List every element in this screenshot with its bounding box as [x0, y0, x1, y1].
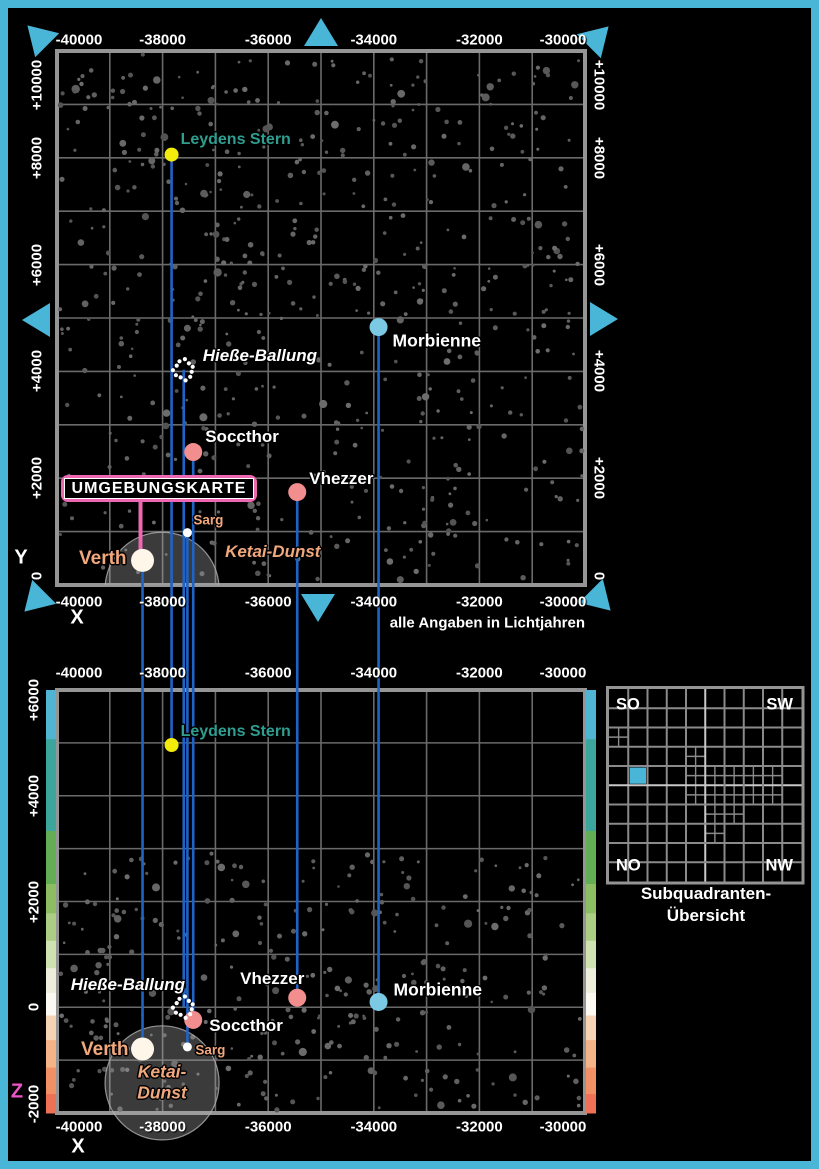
y-tick-left: +4000	[29, 350, 46, 392]
nebula-label-bottom-line1: Ketai-	[138, 1061, 187, 1082]
z-tick-left: +2000	[26, 880, 43, 922]
overview-corner-sw: SW	[766, 696, 793, 715]
x-tick-bottom-map-top: -34000	[350, 665, 397, 682]
umgebungskarte-badge: UMGEBUNGSKARTE	[61, 475, 257, 502]
y-tick-left: +10000	[29, 60, 46, 110]
x-tick-top-map-top: -30000	[540, 32, 587, 49]
star-label-top-soccthor: Soccthor	[205, 427, 279, 447]
z-tick-left: +4000	[26, 775, 43, 817]
star-map-page: X Y X Z alle Angaben in Lichtjahren UMGE…	[0, 0, 819, 1169]
y-tick-right: 0	[591, 572, 608, 580]
x-tick-top-map-bottom: -40000	[56, 594, 103, 611]
nebula-label-top: Ketai-Dunst	[225, 542, 320, 562]
nebula-label-bottom-line2: Dunst	[137, 1082, 187, 1103]
overview-title-line2: Übersicht	[667, 906, 745, 926]
star-label-top-vhezzer: Vhezzer	[309, 469, 373, 489]
x-axis-label-bottom-map: X	[71, 1136, 84, 1159]
x-tick-top-map-bottom: -38000	[139, 594, 186, 611]
overview-corner-no: NO	[616, 857, 641, 876]
star-label-top-leydens-stern: Leydens Stern	[181, 131, 291, 149]
x-tick-top-map-bottom: -36000	[245, 594, 292, 611]
x-tick-bottom-map-bottom: -34000	[350, 1119, 397, 1136]
overview-corner-so: SO	[616, 696, 640, 715]
x-tick-bottom-map-top: -32000	[456, 665, 503, 682]
x-tick-bottom-map-top: -38000	[139, 665, 186, 682]
x-tick-bottom-map-top: -30000	[540, 665, 587, 682]
x-tick-top-map-top: -38000	[139, 32, 186, 49]
map-labels-layer: X Y X Z alle Angaben in Lichtjahren UMGE…	[0, 0, 819, 1169]
star-label-top-sarg: Sarg	[193, 512, 223, 527]
y-tick-left: +8000	[29, 137, 46, 179]
star-label-bottom-vhezzer: Vhezzer	[240, 969, 304, 989]
y-tick-right: +10000	[591, 60, 608, 110]
x-tick-top-map-top: -36000	[245, 32, 292, 49]
star-label-top-hie-e-ballung: Hieße-Ballung	[203, 346, 317, 366]
overview-title-line1: Subquadranten-	[641, 884, 771, 904]
star-label-bottom-verth: Verth	[81, 1039, 129, 1061]
y-axis-label: Y	[14, 547, 27, 570]
x-tick-top-map-top: -40000	[56, 32, 103, 49]
y-tick-right: +4000	[591, 350, 608, 392]
umgebungskarte-label: UMGEBUNGSKARTE	[64, 478, 254, 499]
y-tick-right: +8000	[591, 137, 608, 179]
y-tick-left: +2000	[29, 457, 46, 499]
x-tick-bottom-map-bottom: -30000	[540, 1119, 587, 1136]
y-tick-left: +6000	[29, 244, 46, 286]
star-label-top-morbienne: Morbienne	[393, 331, 481, 352]
x-tick-top-map-top: -32000	[456, 32, 503, 49]
units-note: alle Angaben in Lichtjahren	[390, 615, 585, 632]
x-tick-top-map-bottom: -30000	[540, 594, 587, 611]
x-tick-top-map-bottom: -32000	[456, 594, 503, 611]
x-tick-bottom-map-bottom: -36000	[245, 1119, 292, 1136]
overview-corner-nw: NW	[766, 857, 794, 876]
star-label-top-verth: Verth	[79, 548, 127, 570]
y-tick-right: +2000	[591, 457, 608, 499]
y-tick-right: +6000	[591, 244, 608, 286]
x-tick-bottom-map-top: -40000	[56, 665, 103, 682]
x-tick-bottom-map-top: -36000	[245, 665, 292, 682]
star-label-bottom-soccthor: Soccthor	[209, 1016, 283, 1036]
x-tick-top-map-bottom: -34000	[350, 594, 397, 611]
z-axis-label: Z	[11, 1081, 23, 1104]
star-label-bottom-morbienne: Morbienne	[394, 979, 482, 1000]
x-tick-bottom-map-bottom: -40000	[56, 1119, 103, 1136]
x-tick-bottom-map-bottom: -32000	[456, 1119, 503, 1136]
z-tick-left: 0	[26, 1003, 43, 1011]
x-tick-bottom-map-bottom: -38000	[139, 1119, 186, 1136]
star-label-bottom-leydens-stern: Leydens Stern	[181, 723, 291, 741]
z-tick-left: +6000	[26, 679, 43, 721]
y-tick-left: 0	[29, 572, 46, 580]
x-tick-top-map-top: -34000	[350, 32, 397, 49]
star-label-bottom-hie-e-ballung: Hieße-Ballung	[71, 975, 185, 995]
star-label-bottom-sarg: Sarg	[195, 1042, 225, 1057]
z-tick-left: -2000	[26, 1085, 43, 1123]
